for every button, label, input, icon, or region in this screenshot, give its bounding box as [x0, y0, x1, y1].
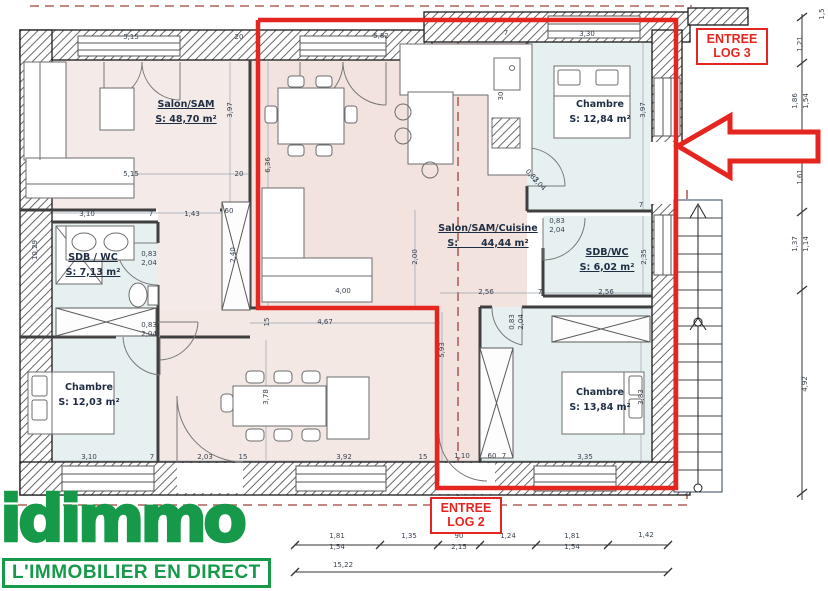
kitchen-sink: [494, 58, 520, 90]
staircase: [674, 200, 722, 492]
side-table-bottom: [327, 377, 369, 439]
entree-log3-text1: ENTREE: [703, 32, 761, 46]
idimmo-tagline: L'IMMOBILIER EN DIRECT: [2, 558, 271, 588]
sofa-central-vertical: [262, 188, 304, 262]
idimmo-logo: idimmo: [0, 488, 243, 552]
stove: [492, 118, 520, 148]
sofa-left-horizontal: [26, 158, 134, 198]
entree-log3-opening: [650, 142, 684, 204]
kitchen-island: [408, 92, 453, 164]
entree-log2-text1: ENTREE: [437, 501, 495, 515]
entree-log2-badge: ENTREE LOG 2: [430, 497, 502, 534]
furniture: [24, 44, 644, 441]
entrance-arrow-icon: [678, 116, 818, 177]
dining-table-central: [278, 88, 344, 144]
entree-log2-text2: LOG 2: [437, 515, 495, 529]
floor-plan-page: Salon/SAMS: 48,70 m²Salon/SAM/CuisineS: …: [0, 0, 828, 591]
toilet: [129, 283, 158, 307]
coffee-table: [100, 88, 134, 130]
sofa-left-vertical: [24, 62, 66, 160]
dining-table-bottom: [233, 386, 326, 426]
double-sink: [66, 226, 134, 260]
sofa-central-horizontal: [262, 258, 372, 302]
entree-log3-text2: LOG 3: [703, 46, 761, 60]
entree-log3-badge: ENTREE LOG 3: [696, 28, 768, 65]
